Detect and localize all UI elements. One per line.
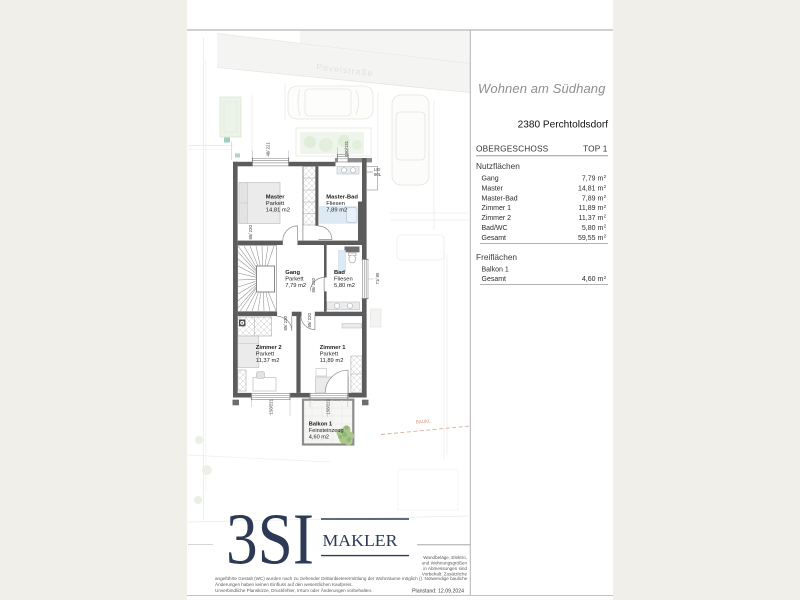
svg-text:Balkon 1: Balkon 1	[309, 422, 332, 428]
svg-text:TOP 1: TOP 1	[583, 144, 608, 154]
svg-text:Zimmer 1: Zimmer 1	[482, 205, 512, 212]
svg-text:OBERGESCHOSS: OBERGESCHOSS	[476, 144, 549, 154]
svg-text:Bad/WC: Bad/WC	[482, 225, 508, 232]
svg-text:71/ 89: 71/ 89	[375, 272, 380, 285]
svg-text:Zimmer 2: Zimmer 2	[482, 215, 512, 222]
svg-text:angeführte Gestalt (WC) wurden: angeführte Gestalt (WC) wurden nach zu z…	[215, 576, 468, 581]
svg-text:und Wohnungsgrößen: und Wohnungsgrößen	[422, 561, 468, 566]
svg-text:Master-Bad: Master-Bad	[326, 195, 358, 201]
svg-text:14,81 m2: 14,81 m2	[266, 208, 290, 214]
svg-text:Wandbeläge, Elektro,: Wandbeläge, Elektro,	[423, 555, 467, 560]
svg-text:85/ 220: 85/ 220	[307, 313, 312, 328]
svg-text:2380 Perchtoldsdorf: 2380 Perchtoldsdorf	[518, 119, 609, 130]
svg-text:7,89 m2: 7,89 m2	[326, 208, 347, 214]
svg-text:Master-Bad: Master-Bad	[482, 195, 518, 202]
svg-text:Fliesen: Fliesen	[334, 277, 353, 283]
svg-text:158/221: 158/221	[269, 398, 274, 414]
svg-text:7,79 m2: 7,79 m2	[285, 283, 306, 289]
svg-text:4,60 m: 4,60 m	[582, 276, 604, 283]
svg-text:Freiflächen: Freiflächen	[476, 252, 517, 262]
svg-text:Master: Master	[266, 195, 285, 201]
svg-text:Gang: Gang	[285, 270, 300, 276]
svg-text:5,80 m: 5,80 m	[582, 225, 604, 232]
svg-text:7,79 m: 7,79 m	[582, 176, 604, 183]
svg-text:11,89 m: 11,89 m	[579, 205, 604, 212]
svg-text:14,81 m: 14,81 m	[578, 185, 603, 192]
svg-text:Parkett: Parkett	[320, 352, 339, 358]
svg-text:158/221: 158/221	[326, 398, 331, 414]
svg-text:Gesamt: Gesamt	[482, 235, 507, 242]
svg-text:Unverbindliche Planskizze, Dru: Unverbindliche Planskizze, Druckfehler, …	[215, 587, 372, 593]
svg-text:85/ 220: 85/ 220	[248, 225, 253, 240]
svg-text:Parkett: Parkett	[285, 277, 304, 283]
svg-text:11,37 m: 11,37 m	[579, 215, 604, 222]
svg-text:5,80 m2: 5,80 m2	[334, 283, 355, 289]
svg-text:4,60 m2: 4,60 m2	[309, 435, 329, 441]
svg-text:Feinsteinzeug: Feinsteinzeug	[309, 428, 344, 434]
svg-text:3SI: 3SI	[226, 499, 314, 580]
svg-text:Zimmer 2: Zimmer 2	[256, 345, 282, 351]
svg-text:Planstand: 12.09.2024: Planstand: 12.09.2024	[412, 589, 464, 595]
svg-text:Fliesen: Fliesen	[326, 201, 345, 207]
svg-text:90L: 90L	[374, 172, 382, 177]
svg-text:Balkon 1: Balkon 1	[482, 267, 509, 274]
svg-text:11,89 m2: 11,89 m2	[320, 358, 344, 364]
svg-text:Zimmer 1: Zimmer 1	[320, 345, 347, 351]
svg-text:Master: Master	[482, 185, 504, 192]
svg-text:Nutzflächen: Nutzflächen	[476, 161, 520, 171]
svg-text:85/ 220: 85/ 220	[283, 316, 288, 331]
svg-text:85/ 220: 85/ 220	[311, 278, 316, 293]
svg-text:BAUKL: BAUKL	[416, 418, 432, 424]
svg-text:40/ 221: 40/ 221	[266, 142, 271, 157]
svg-text:11,37 m2: 11,37 m2	[256, 358, 280, 364]
svg-text:Gang: Gang	[482, 176, 499, 183]
svg-text:Parkett: Parkett	[256, 352, 275, 358]
svg-text:Parkett: Parkett	[266, 201, 285, 207]
svg-text:MAKLER: MAKLER	[323, 531, 398, 550]
svg-text:Gesamt: Gesamt	[482, 276, 507, 283]
svg-text:59,55 m: 59,55 m	[578, 235, 603, 242]
svg-text:Änderungen haben keinen Einflu: Änderungen haben keinen Einfluss auf den…	[215, 581, 353, 587]
svg-text:7,89 m: 7,89 m	[582, 195, 604, 202]
svg-text:in Abmessungen sind: in Abmessungen sind	[423, 566, 467, 571]
svg-text:Wohnen am Südhang: Wohnen am Südhang	[478, 81, 606, 96]
svg-text:Bad: Bad	[334, 270, 345, 276]
